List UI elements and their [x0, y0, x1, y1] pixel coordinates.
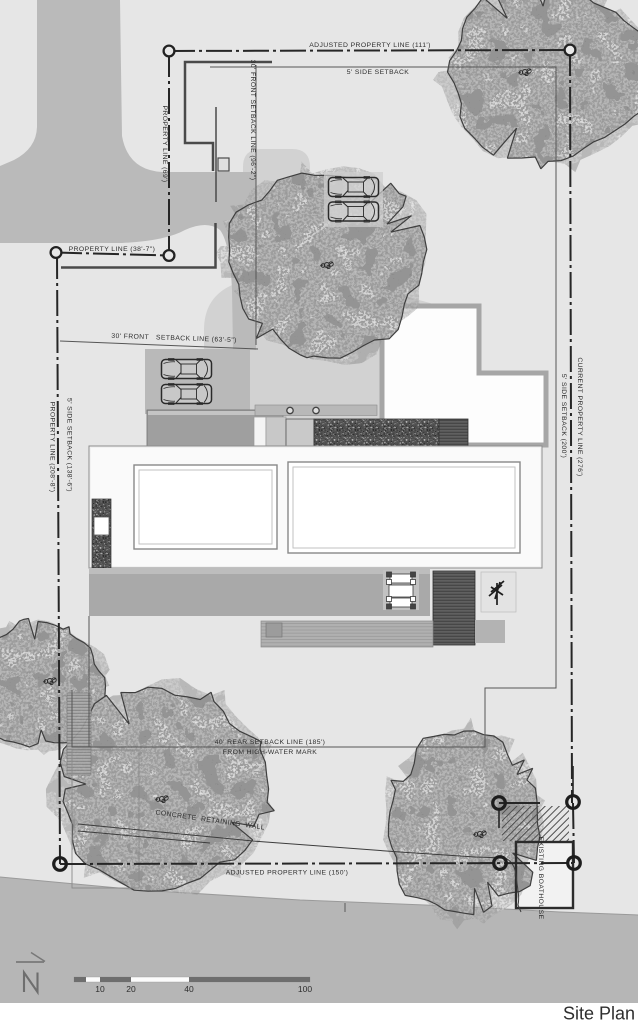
svg-text:PROPERTY LINE (38'-7"): PROPERTY LINE (38'-7"): [69, 246, 156, 253]
svg-text:100: 100: [298, 984, 312, 994]
svg-text:FROM HIGH-WATER MARK: FROM HIGH-WATER MARK: [223, 749, 318, 756]
svg-text:5' SIDE SETBACK (200'): 5' SIDE SETBACK (200'): [560, 374, 567, 458]
svg-text:ADJUSTED PROPERTY LINE (150'): ADJUSTED PROPERTY LINE (150'): [226, 870, 349, 877]
svg-text:CURRENT PROPERTY LINE (276'): CURRENT PROPERTY LINE (276'): [576, 357, 583, 476]
svg-text:PROPERTY LINE (208'-8"): PROPERTY LINE (208'-8"): [49, 402, 56, 493]
svg-text:5' SIDE SETBACK (138'-6"): 5' SIDE SETBACK (138'-6"): [66, 398, 73, 492]
svg-text:30' FRONT SETBACK LINE (96'-2": 30' FRONT SETBACK LINE (96'-2"): [249, 60, 256, 181]
svg-text:ADJUSTED PROPERTY LINE (111'): ADJUSTED PROPERTY LINE (111'): [309, 42, 431, 49]
svg-text:EXISTING BOATHOUSE: EXISTING BOATHOUSE: [537, 837, 544, 920]
svg-text:10: 10: [95, 984, 105, 994]
svg-text:20: 20: [126, 984, 136, 994]
svg-text:5' SIDE SETBACK: 5' SIDE SETBACK: [347, 69, 410, 76]
svg-text:Site Plan: Site Plan: [563, 1004, 635, 1024]
svg-text:40' REAR SETBACK LINE (185'): 40' REAR SETBACK LINE (185'): [215, 739, 326, 746]
svg-text:PROPERTY LINE (69'): PROPERTY LINE (69'): [161, 105, 168, 182]
svg-text:40: 40: [184, 984, 194, 994]
